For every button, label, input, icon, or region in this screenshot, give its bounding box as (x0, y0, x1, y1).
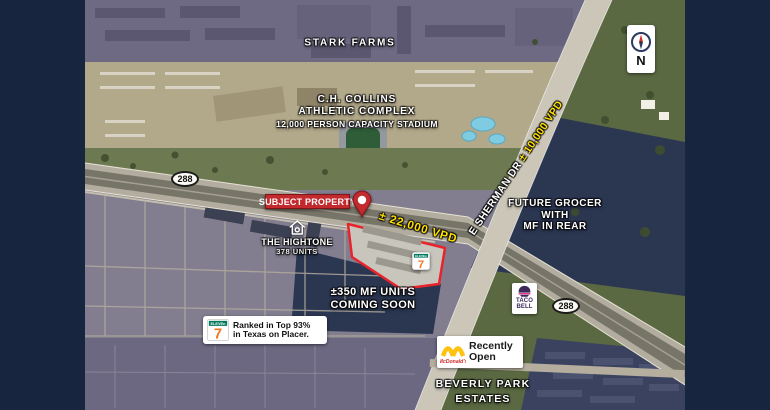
seven-eleven-store-icon: ELEVEn 7 (412, 252, 430, 270)
flyer-frame: STARK FARMS C.H. COLLINS ATHLETIC COMPLE… (0, 0, 770, 410)
route-288-shield-east: 288 (552, 298, 580, 314)
future-grocer-line3: MF IN REAR (508, 221, 602, 233)
subject-property-banner: SUBJECT PROPERTY (265, 194, 350, 209)
compass-north-letter: N (636, 54, 645, 67)
house-icon (287, 219, 307, 236)
placer-line2: in Texas on Placer. (233, 330, 310, 340)
taco-bell-sign: TACO BELL (512, 283, 537, 314)
future-grocer-line1: FUTURE GROCER (508, 198, 602, 210)
collins-line1: C.H. COLLINS (276, 94, 438, 106)
svg-text:7: 7 (214, 327, 222, 341)
hightone-name: THE HIGHTONE (261, 237, 332, 247)
compass-needle-icon (630, 31, 652, 53)
svg-text:McDonald's: McDonald's (440, 359, 466, 365)
future-grocer-label: FUTURE GROCER WITH MF IN REAR (508, 198, 602, 233)
beverly-line2: ESTATES (436, 392, 531, 407)
hightone-units: 378 UNITS (261, 247, 332, 256)
mf-units-line2: COMING SOON (330, 299, 415, 312)
mcdonalds-arches-icon: McDonald's (440, 339, 466, 365)
mcdonalds-badge: McDonald's Recently Open (437, 336, 523, 368)
taco-bell-icon (517, 285, 532, 298)
stark-farms-label: STARK FARMS (304, 38, 395, 49)
beverly-park-label: BEVERLY PARK ESTATES (436, 377, 531, 407)
svg-text:ELEVEn: ELEVEn (415, 254, 427, 258)
recently-open-line2: Open (469, 352, 513, 363)
athletic-complex-label: C.H. COLLINS ATHLETIC COMPLEX 12,000 PER… (276, 94, 438, 130)
route-288-shield-west: 288 (171, 171, 199, 187)
svg-text:ELEVEn: ELEVEn (211, 322, 227, 326)
subject-property-pin-icon (351, 190, 373, 223)
beverly-line1: BEVERLY PARK (436, 377, 531, 392)
taco-bell-line2: BELL (516, 304, 532, 310)
mf-units-label: ±350 MF UNITS COMING SOON (330, 286, 415, 312)
north-compass: N (627, 25, 655, 73)
collins-line2: ATHLETIC COMPLEX (276, 106, 438, 118)
satellite-map: STARK FARMS C.H. COLLINS ATHLETIC COMPLE… (85, 0, 685, 410)
future-grocer-line2: WITH (508, 210, 602, 222)
mf-units-line1: ±350 MF UNITS (330, 286, 415, 299)
svg-text:7: 7 (418, 259, 424, 270)
seven-eleven-logo-icon: ELEVEn 7 (207, 319, 229, 341)
seven-eleven-placer-badge: ELEVEn 7 Ranked in Top 93% in Texas on P… (203, 316, 327, 344)
collins-line3: 12,000 PERSON CAPACITY STADIUM (276, 118, 438, 130)
hightone-label: THE HIGHTONE 378 UNITS (261, 219, 332, 256)
